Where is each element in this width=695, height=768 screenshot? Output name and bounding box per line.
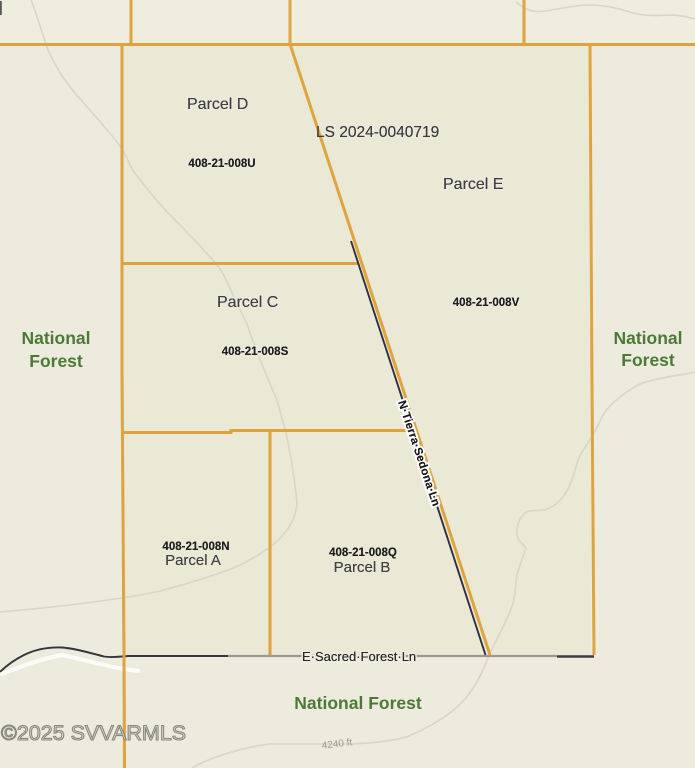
svg-text:National Forest: National Forest <box>294 693 422 713</box>
svg-text:Parcel B: Parcel B <box>334 559 391 576</box>
svg-text:408-21-008Q: 408-21-008Q <box>329 547 397 559</box>
svg-text:Parcel E: Parcel E <box>443 176 503 193</box>
svg-text:Parcel A: Parcel A <box>165 552 221 569</box>
svg-text:E·Sacred·Forest·Ln: E·Sacred·Forest·Ln <box>302 649 416 664</box>
svg-text:Parcel C: Parcel C <box>217 294 278 311</box>
svg-text:408-21-008V: 408-21-008V <box>453 297 520 309</box>
svg-text:408-21-008S: 408-21-008S <box>222 346 289 358</box>
svg-text:408-21-008U: 408-21-008U <box>188 158 255 170</box>
svg-text:National: National <box>21 328 90 348</box>
svg-text:National: National <box>613 328 682 348</box>
svg-text:LS 2024-0040719: LS 2024-0040719 <box>316 124 439 141</box>
svg-text:Parcel D: Parcel D <box>187 96 248 113</box>
svg-text:Forest: Forest <box>29 351 83 371</box>
svg-text:©2025 SVVARMLS: ©2025 SVVARMLS <box>1 721 186 745</box>
svg-text:Forest: Forest <box>621 350 675 370</box>
